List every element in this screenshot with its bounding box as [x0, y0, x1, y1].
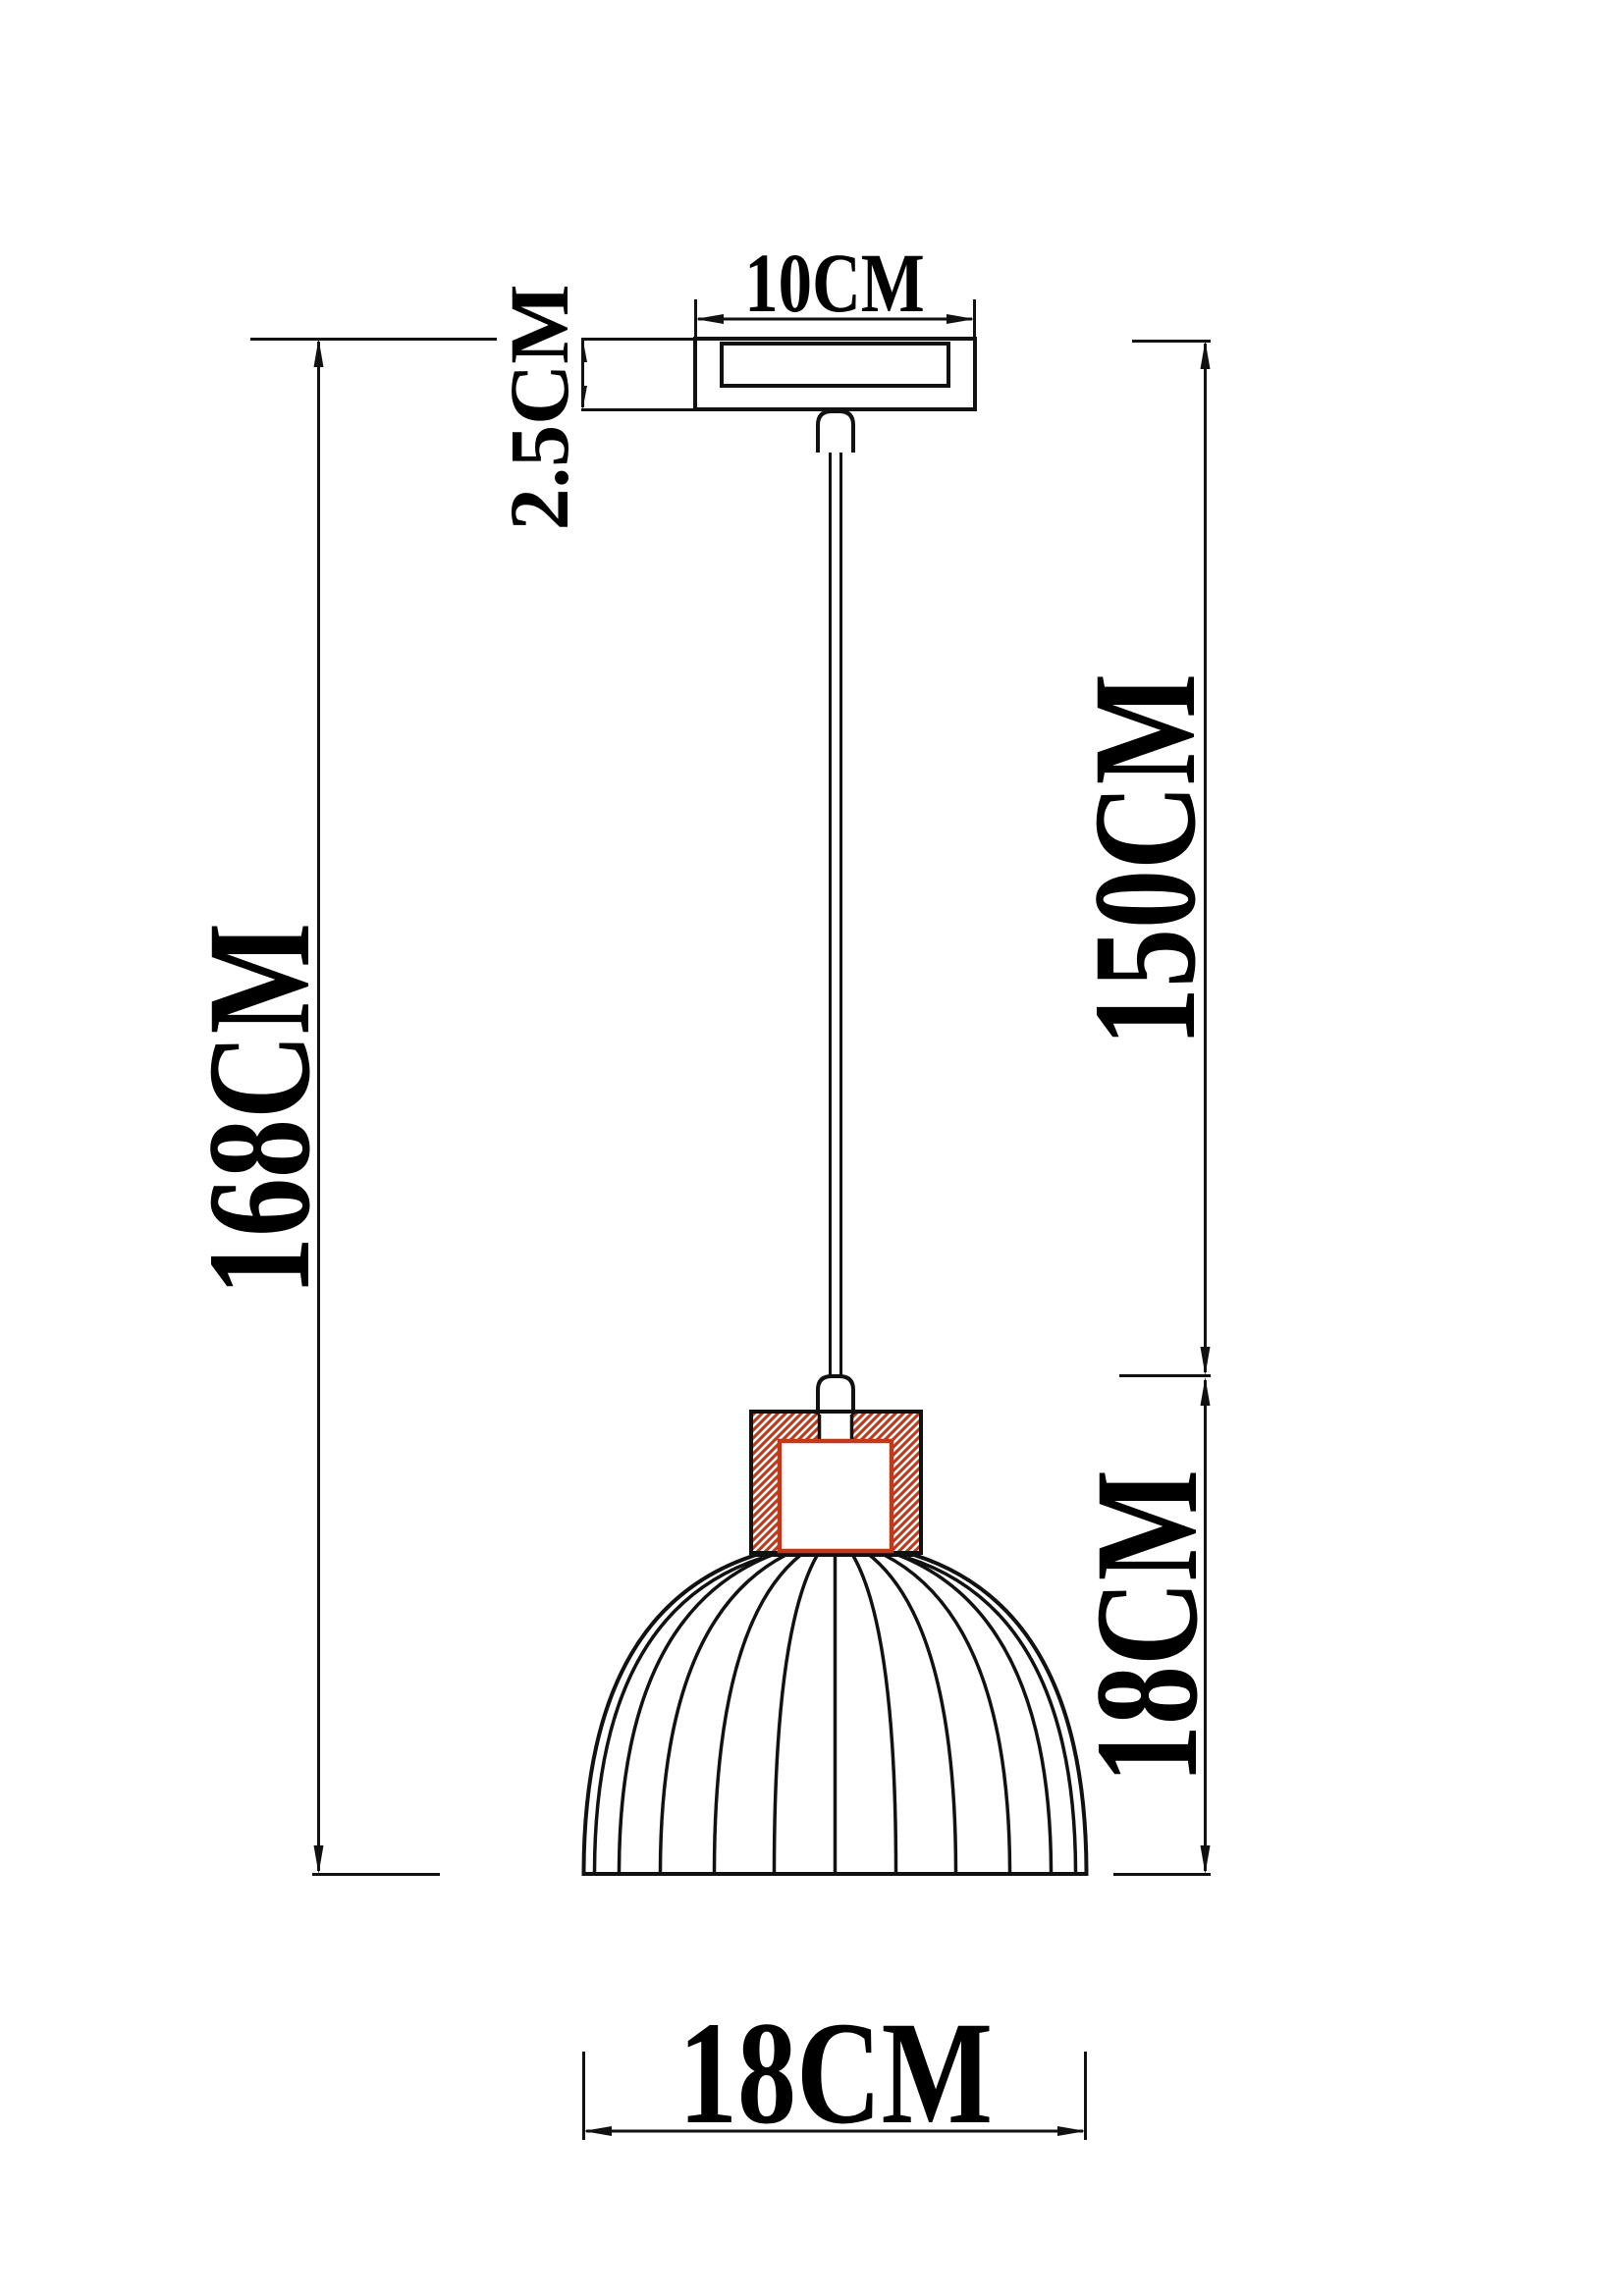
wood-socket-cup [751, 1412, 921, 1553]
total-height-label: 168CM [186, 923, 333, 1296]
shade-height-label: 18CM [1073, 1469, 1220, 1784]
cord-notch [819, 1414, 852, 1443]
cord-grip-top [818, 411, 853, 453]
lamp-dimension-drawing: 10CM 2.5CM 168CM 150CM 18CM 18CM [0, 0, 1623, 2296]
canopy-inner-plate [722, 344, 948, 386]
shade-dome [584, 1555, 1087, 1874]
cord-grip-bottom [818, 1376, 853, 1415]
cord-length-label: 150CM [1071, 673, 1218, 1046]
shade-diameter-label: 18CM [678, 2000, 993, 2147]
ceiling-canopy [695, 339, 975, 409]
canopy-height-label: 2.5CM [497, 281, 581, 535]
socket-cavity [780, 1441, 892, 1551]
cord [831, 447, 841, 1380]
canopy-width-label: 10CM [744, 240, 924, 325]
